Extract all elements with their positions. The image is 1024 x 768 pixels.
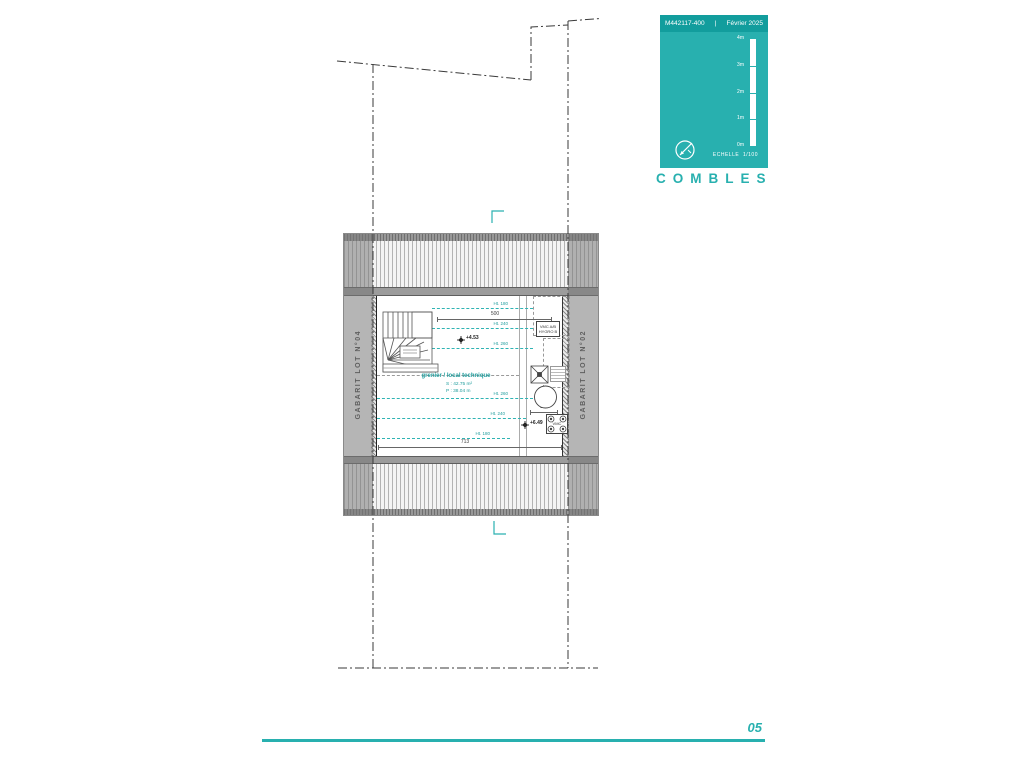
roof-hatch-top [344, 241, 598, 287]
scale-tick-4m: 4m [724, 36, 744, 41]
duct-diameter-label: Ø160 [534, 394, 557, 399]
dim-duct: 173 [530, 405, 558, 410]
height-line-label: Ht. 240 [468, 322, 508, 327]
vmc-outlet-label: VMC [550, 422, 564, 427]
bottom-wall-band [344, 456, 598, 464]
height-line-180b [377, 438, 510, 439]
gabarit-strip-right: GABARIT LOT N°02 [568, 234, 598, 515]
height-line-180 [432, 308, 533, 309]
height-line-label: Ht. 180 [450, 432, 490, 437]
dim-stair: 208 [393, 313, 415, 318]
height-line-label: Ht. 260 [468, 342, 508, 347]
level-ridge: +4.53 [466, 336, 492, 341]
vmc-unit-box: VMC A/B HYGRO B [536, 321, 560, 337]
dim-line-room [378, 447, 562, 448]
gabarit-lot-04-label: GABARIT LOT N°04 [355, 330, 362, 419]
drawing-date: Février 2025 [727, 20, 764, 27]
vmc-unit-label-2: HYGRO B [537, 330, 559, 335]
sheet-title: COMBLES [656, 171, 772, 186]
title-block-header: M442117-400 | Février 2025 [660, 15, 768, 32]
height-line-label: Ht. 180 [468, 302, 508, 307]
drawing-sheet: GABARIT LOT N°04 GABARIT LOT N°02 Ht. 18… [0, 0, 1024, 768]
room-name: grenier / local technique [420, 373, 492, 379]
roof-eaves-top [344, 234, 598, 241]
north-arrow-icon [673, 138, 699, 164]
scale-tick-2m: 2m [724, 90, 744, 95]
height-line-240b [377, 418, 526, 419]
title-block: M442117-400 | Février 2025 4m 3m 2m 1m 0… [660, 15, 768, 168]
height-line-240 [432, 328, 533, 329]
room-perimeter: P : 38.04 m [446, 390, 490, 395]
height-line-260b [377, 398, 533, 399]
gabarit-lot-02-label: GABARIT LOT N°02 [580, 330, 587, 419]
height-line-260 [432, 348, 533, 349]
scale-tick-3m: 3m [724, 63, 744, 68]
dim-room: 713 [450, 440, 480, 445]
room-surface: S : 42.75 m² [446, 383, 490, 388]
dim-upper: 500 [480, 312, 510, 317]
scale-tick-1m: 1m [724, 116, 744, 121]
dim-line-upper [437, 319, 552, 320]
shaft-annotation-box [550, 366, 566, 382]
roof-hatch-bottom [344, 464, 598, 509]
header-separator: | [715, 20, 717, 27]
scale-text: ECHELLE 1/100 [700, 152, 758, 158]
ridge-wall-band [344, 287, 598, 296]
guide-line [519, 296, 520, 456]
roof-eaves-bottom [344, 509, 598, 515]
gabarit-strip-left: GABARIT LOT N°04 [344, 234, 373, 515]
height-line-label: Ht. 240 [465, 412, 505, 417]
page-number: 05 [700, 720, 762, 735]
scale-tick-0m: 0m [724, 143, 744, 148]
guide-line [526, 296, 527, 456]
drawing-ref: M442117-400 [665, 20, 705, 27]
footer-rule [262, 739, 765, 742]
dim-line-duct [530, 412, 558, 413]
